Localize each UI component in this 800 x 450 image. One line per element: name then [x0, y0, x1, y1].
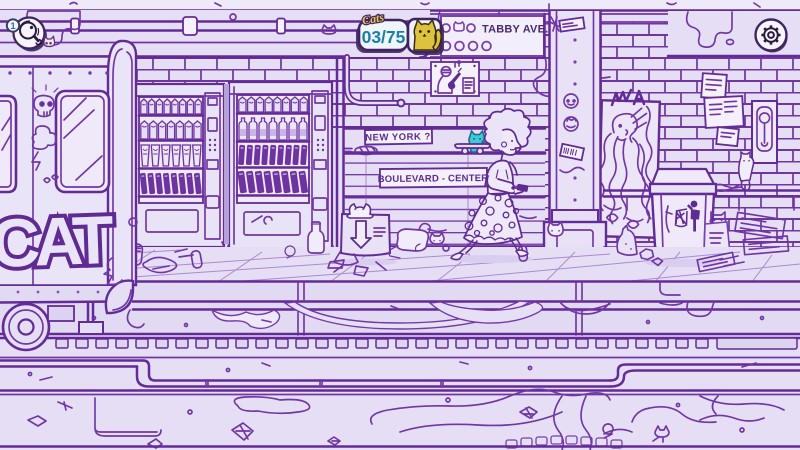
- svg-text:03/75: 03/75: [362, 27, 406, 47]
- svg-text:NEW YORK ?: NEW YORK ?: [365, 131, 431, 143]
- svg-text:BOULEVARD - CENTER: BOULEVARD - CENTER: [378, 173, 489, 185]
- svg-text:CAT: CAT: [0, 202, 115, 282]
- svg-text:1: 1: [10, 21, 16, 32]
- svg-text:TABBY AVE.: TABBY AVE.: [482, 24, 548, 36]
